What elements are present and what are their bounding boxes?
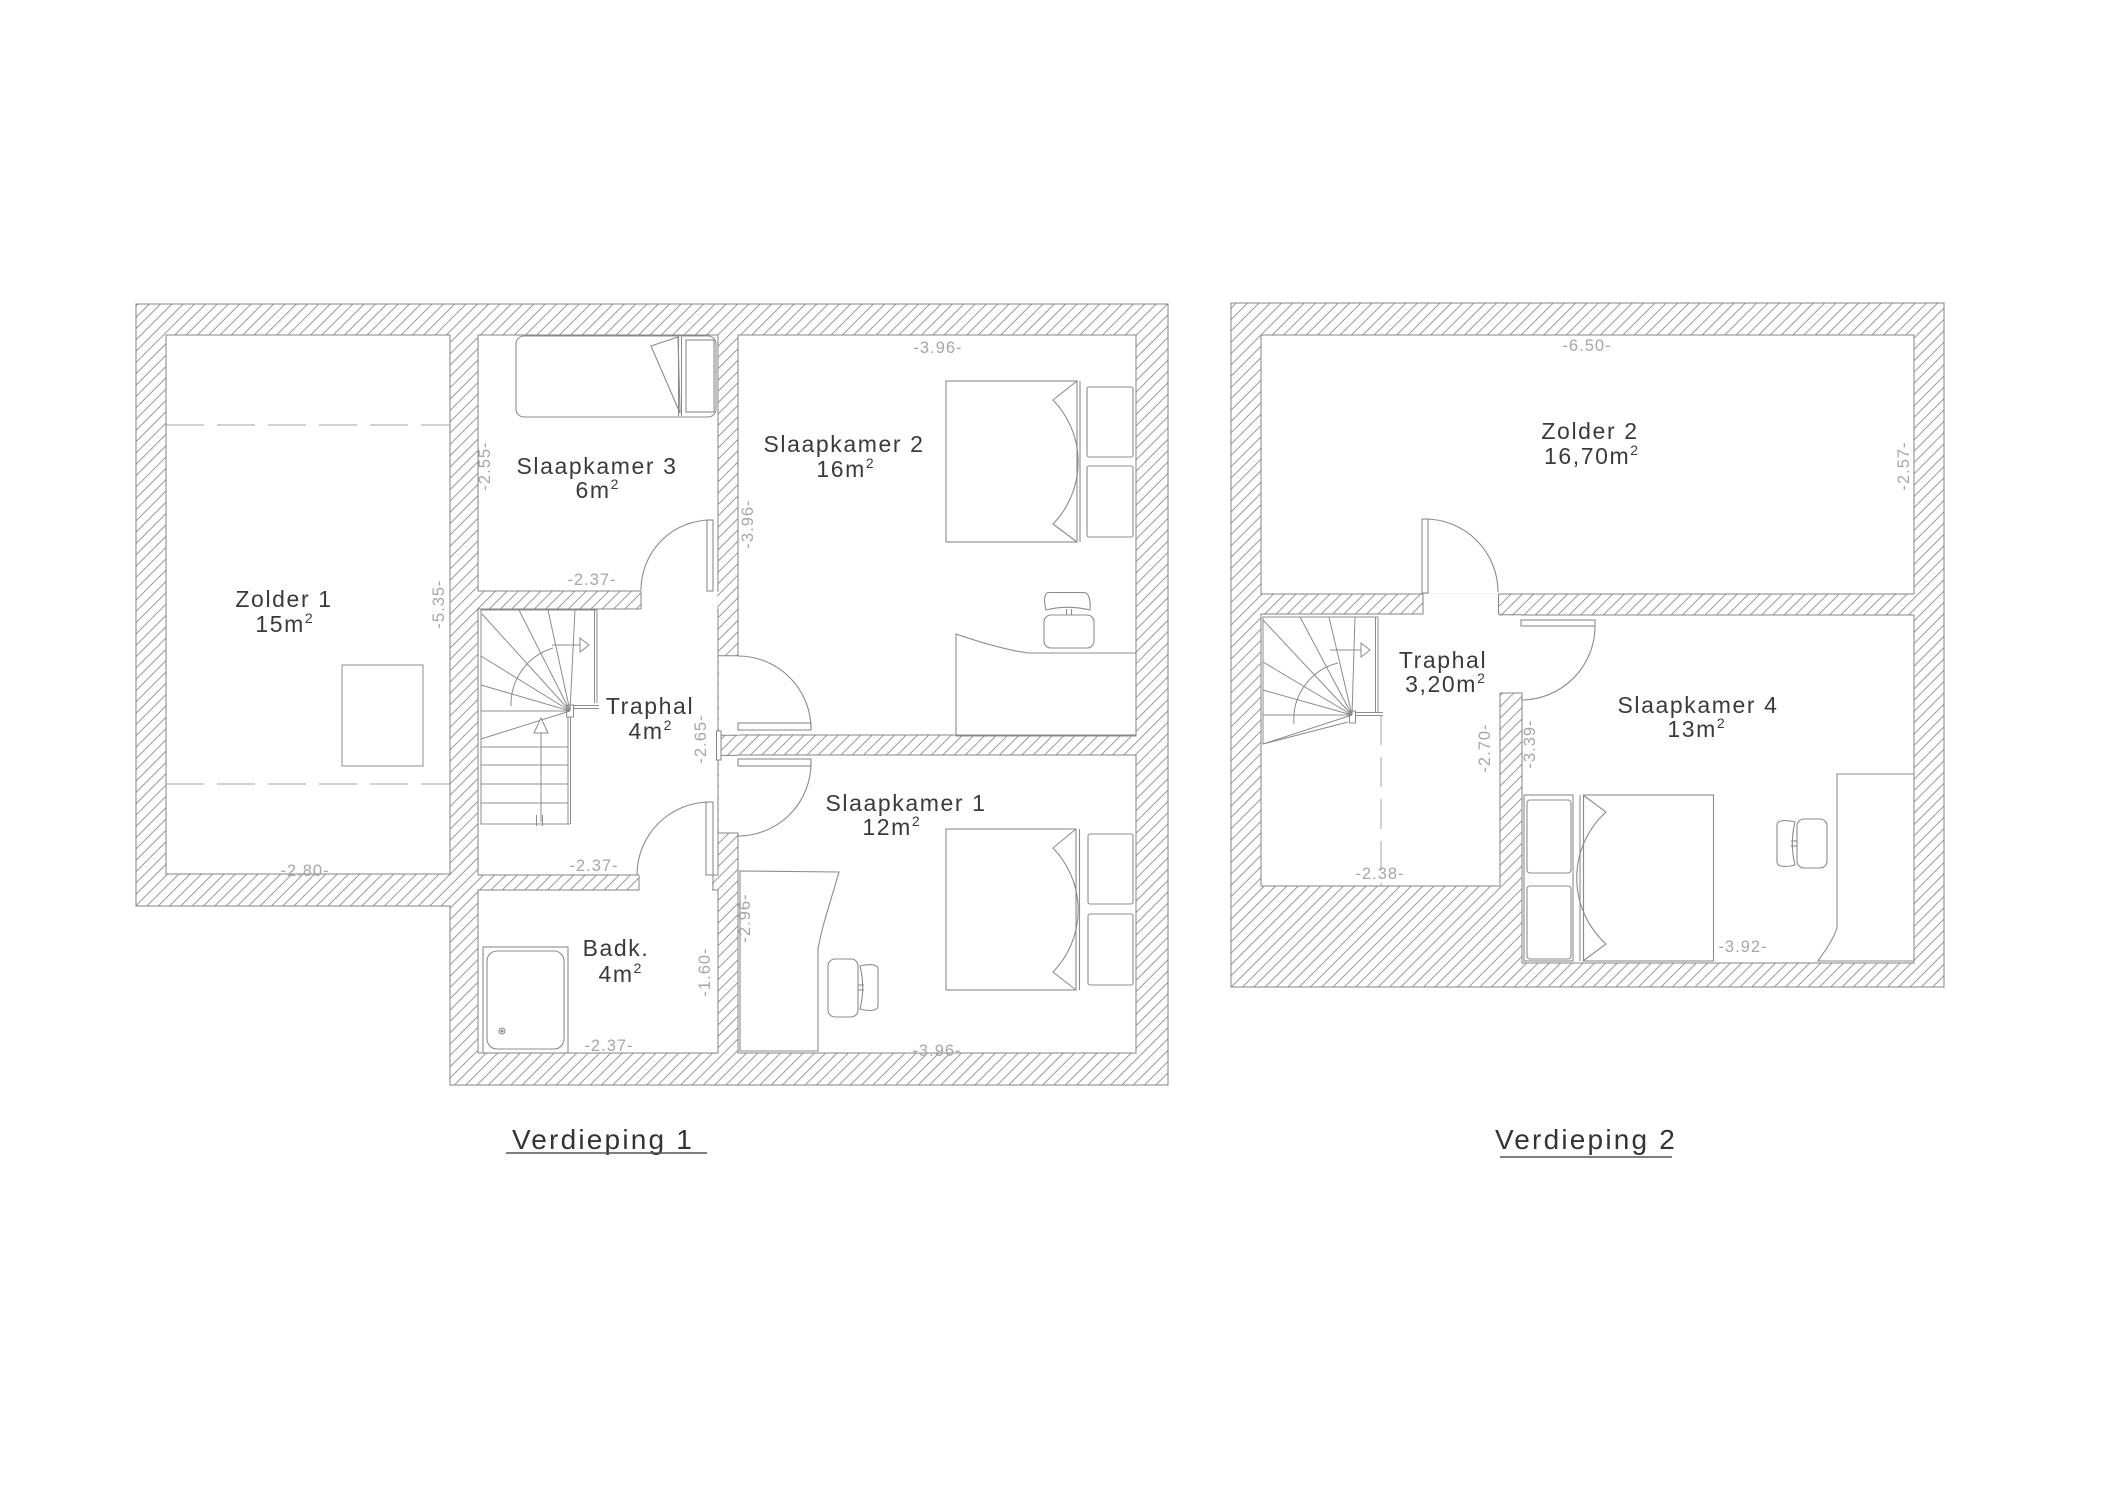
svg-text:13m2: 13m2 xyxy=(1667,715,1725,742)
svg-text:Slaapkamer 4: Slaapkamer 4 xyxy=(1617,692,1778,718)
svg-text:Verdieping 2: Verdieping 2 xyxy=(1495,1124,1677,1155)
svg-text:15m2: 15m2 xyxy=(255,610,313,637)
svg-text:6m2: 6m2 xyxy=(576,476,619,503)
svg-text:-2.37-: -2.37- xyxy=(567,571,616,589)
svg-text:-2.38-: -2.38- xyxy=(1355,865,1404,883)
svg-text:4m2: 4m2 xyxy=(599,960,642,987)
svg-text:-3.39-: -3.39- xyxy=(1521,719,1539,768)
svg-text:4m2: 4m2 xyxy=(629,717,672,744)
svg-text:-2.80-: -2.80- xyxy=(280,862,329,880)
svg-text:16,70m2: 16,70m2 xyxy=(1544,442,1638,469)
svg-text:-3.96-: -3.96- xyxy=(912,1042,961,1060)
svg-text:-5.35-: -5.35- xyxy=(430,579,448,628)
svg-text:Zolder 2: Zolder 2 xyxy=(1541,418,1638,444)
svg-text:-2.65-: -2.65- xyxy=(692,714,710,763)
svg-text:-3.96-: -3.96- xyxy=(739,499,757,548)
svg-text:Slaapkamer 1: Slaapkamer 1 xyxy=(825,790,986,816)
svg-text:3,20m2: 3,20m2 xyxy=(1405,670,1485,697)
svg-text:-3.96-: -3.96- xyxy=(913,339,962,357)
svg-text:16m2: 16m2 xyxy=(816,455,874,482)
svg-text:-2.96-: -2.96- xyxy=(736,893,754,942)
svg-text:Slaapkamer 3: Slaapkamer 3 xyxy=(516,453,677,479)
svg-text:-2.70-: -2.70- xyxy=(1476,723,1494,772)
svg-text:-2.37-: -2.37- xyxy=(569,857,618,875)
svg-text:-3.92-: -3.92- xyxy=(1718,938,1767,956)
svg-text:Slaapkamer 2: Slaapkamer 2 xyxy=(763,431,924,457)
svg-text:Traphal: Traphal xyxy=(1399,647,1487,673)
svg-text:12m2: 12m2 xyxy=(862,813,920,840)
svg-text:-2.57-: -2.57- xyxy=(1895,441,1913,490)
svg-text:-2.37-: -2.37- xyxy=(584,1037,633,1055)
svg-text:-2.55-: -2.55- xyxy=(476,441,494,490)
svg-text:Traphal: Traphal xyxy=(606,693,694,719)
svg-text:Zolder 1: Zolder 1 xyxy=(235,586,332,612)
svg-text:-1.60-: -1.60- xyxy=(696,947,714,996)
svg-text:Verdieping 1: Verdieping 1 xyxy=(512,1124,694,1155)
svg-text:Badk.: Badk. xyxy=(583,935,650,961)
svg-text:-6.50-: -6.50- xyxy=(1562,337,1611,355)
